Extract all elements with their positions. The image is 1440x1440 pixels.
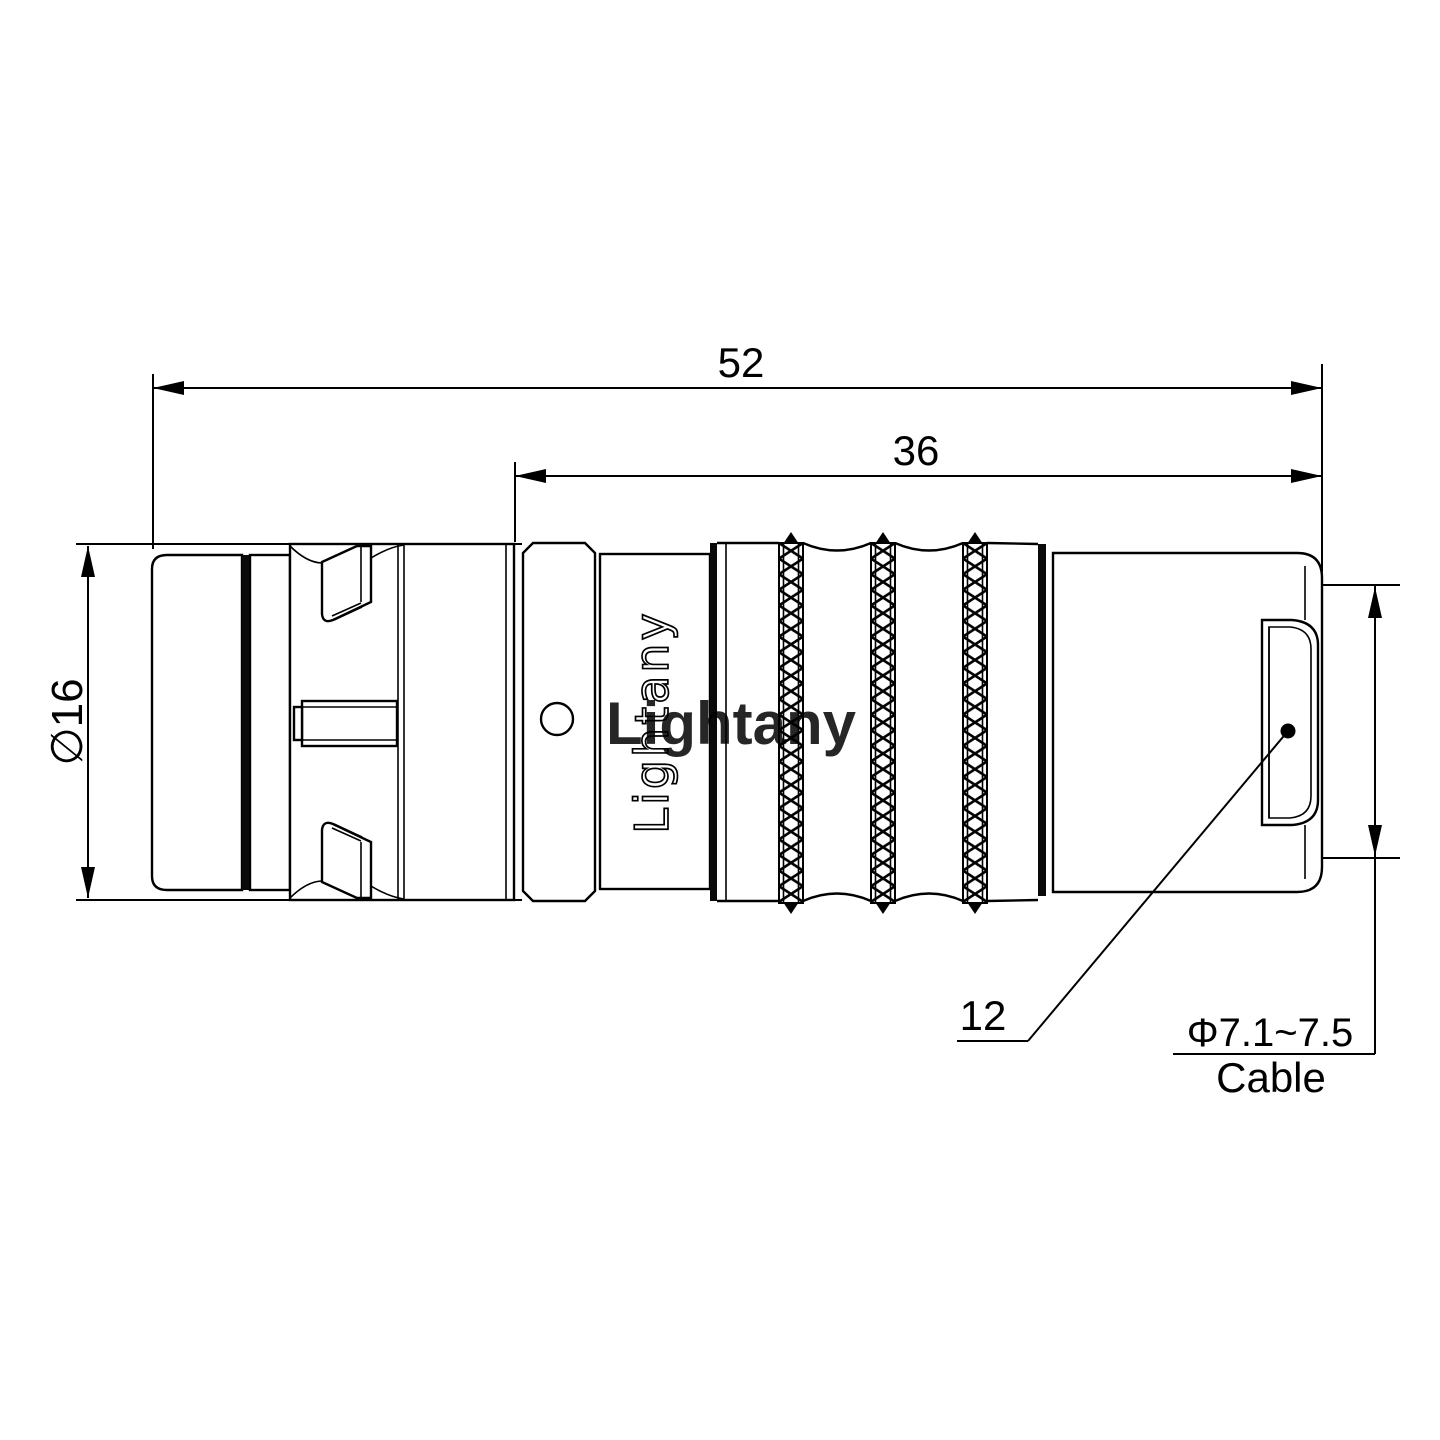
dim-16-arrow-bottom — [81, 867, 95, 898]
knurl-band-1-tip-bottom — [783, 902, 799, 914]
front-shell-cap — [152, 555, 242, 890]
cable-arrow-bottom — [1368, 825, 1382, 856]
bayonet-slot-section — [290, 544, 514, 900]
cable-range-label: Φ7.1~7.5 — [1187, 1011, 1353, 1055]
knurl-band-2-tip-bottom — [875, 902, 891, 914]
watermark-text: Lightany — [606, 690, 857, 757]
dim-16-label: ∅16 — [43, 678, 92, 765]
bridge-bar-step — [294, 707, 302, 740]
knurl-band-3-body — [963, 543, 987, 903]
cable-word-label: Cable — [1216, 1054, 1326, 1101]
knurl-band-2-body — [871, 543, 895, 903]
drawing-page: Lightany — [0, 0, 1440, 1440]
dim-36-label: 36 — [893, 427, 940, 474]
front-shell-segment — [250, 555, 290, 890]
knurl-band-2 — [871, 532, 895, 914]
knurl-band-3-tip-bottom — [967, 902, 983, 914]
dim-52-arrow-right — [1291, 381, 1322, 395]
dim-12-leader-dot — [1281, 724, 1296, 739]
knurl-band-3 — [963, 532, 987, 914]
cable-recess-outer — [1262, 620, 1318, 825]
dim-52-arrow-left — [153, 381, 184, 395]
dim-12-label: 12 — [960, 992, 1007, 1039]
dimension-total-length: 52 — [153, 339, 1322, 572]
dimension-body-length: 36 — [515, 427, 1322, 542]
knurl-band-3-tip-top — [967, 532, 983, 544]
dim-16-arrow-top — [81, 546, 95, 577]
collar-outline — [523, 543, 595, 901]
dim-36-arrow-left — [515, 469, 546, 483]
collar-section — [523, 543, 595, 901]
knurl-band-1-tip-top — [783, 532, 799, 544]
grip-right-ring — [1038, 544, 1046, 896]
cable-arrow-top — [1368, 587, 1382, 618]
dim-52-label: 52 — [718, 339, 765, 386]
rear-shell — [1053, 553, 1322, 892]
center-bridge-bar — [294, 701, 397, 746]
connector-technical-drawing: Lightany — [0, 0, 1440, 1440]
cable-recess — [1262, 620, 1318, 825]
knurl-band-2-tip-top — [875, 532, 891, 544]
dim-36-arrow-right — [1291, 469, 1322, 483]
